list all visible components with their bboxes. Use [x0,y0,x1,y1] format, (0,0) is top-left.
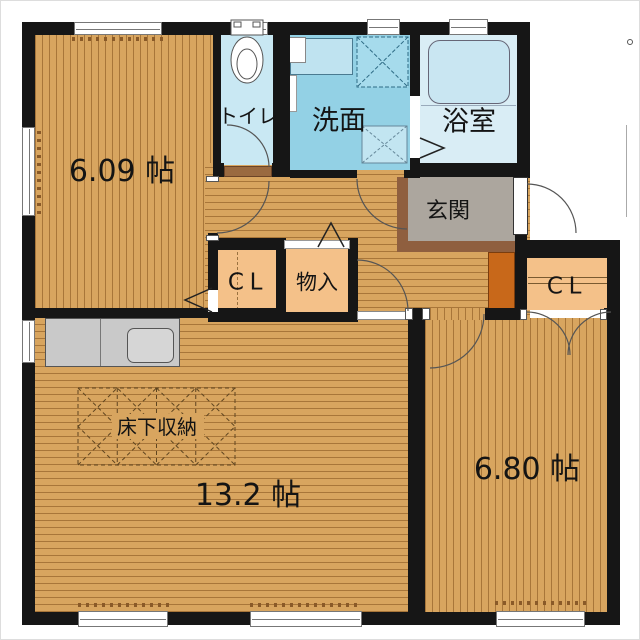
room-label-toilet: トイレ [218,106,278,126]
closet2-door-arc-left [527,312,570,355]
toilet-icon [231,20,263,83]
closet2-door-arc-right [568,312,611,355]
storage-folding-door [318,223,344,247]
floor-plan: 6.09 帖 トイレ 洗面 浴室 玄関 CL 物入 CL 床下収納 13.2 帖… [0,0,640,640]
toilet-door-arc [227,125,269,167]
bathroom-folding-door [420,138,444,158]
room-label-washroom: 洗面 [312,108,366,135]
room-label-ldk: 13.2 帖 [195,481,301,511]
bedroom1-door-arc [217,181,269,233]
room-label-underfloor: 床下収納 [117,417,197,437]
room-label-bedroom1: 6.09 帖 [69,157,175,187]
entrance-door-arc [527,184,576,233]
room-label-entrance: 玄関 [426,201,470,223]
room-label-storage: 物入 [296,273,338,294]
washroom-appliance-box [362,126,407,163]
ldk-door-arc [357,260,408,311]
plan-symbols-overlay [0,0,640,640]
room-label-bedroom2: 6.80 帖 [474,455,580,485]
washing-machine-pan [357,37,408,87]
room-label-closet1: CL [228,272,268,295]
closet1-folding-door [185,288,212,312]
survey-point-marker [628,40,633,45]
washroom-door-arc [357,179,407,229]
bedroom2-door-arc [430,314,484,368]
room-label-closet2: CL [547,276,587,299]
room-label-bathroom: 浴室 [442,109,496,136]
